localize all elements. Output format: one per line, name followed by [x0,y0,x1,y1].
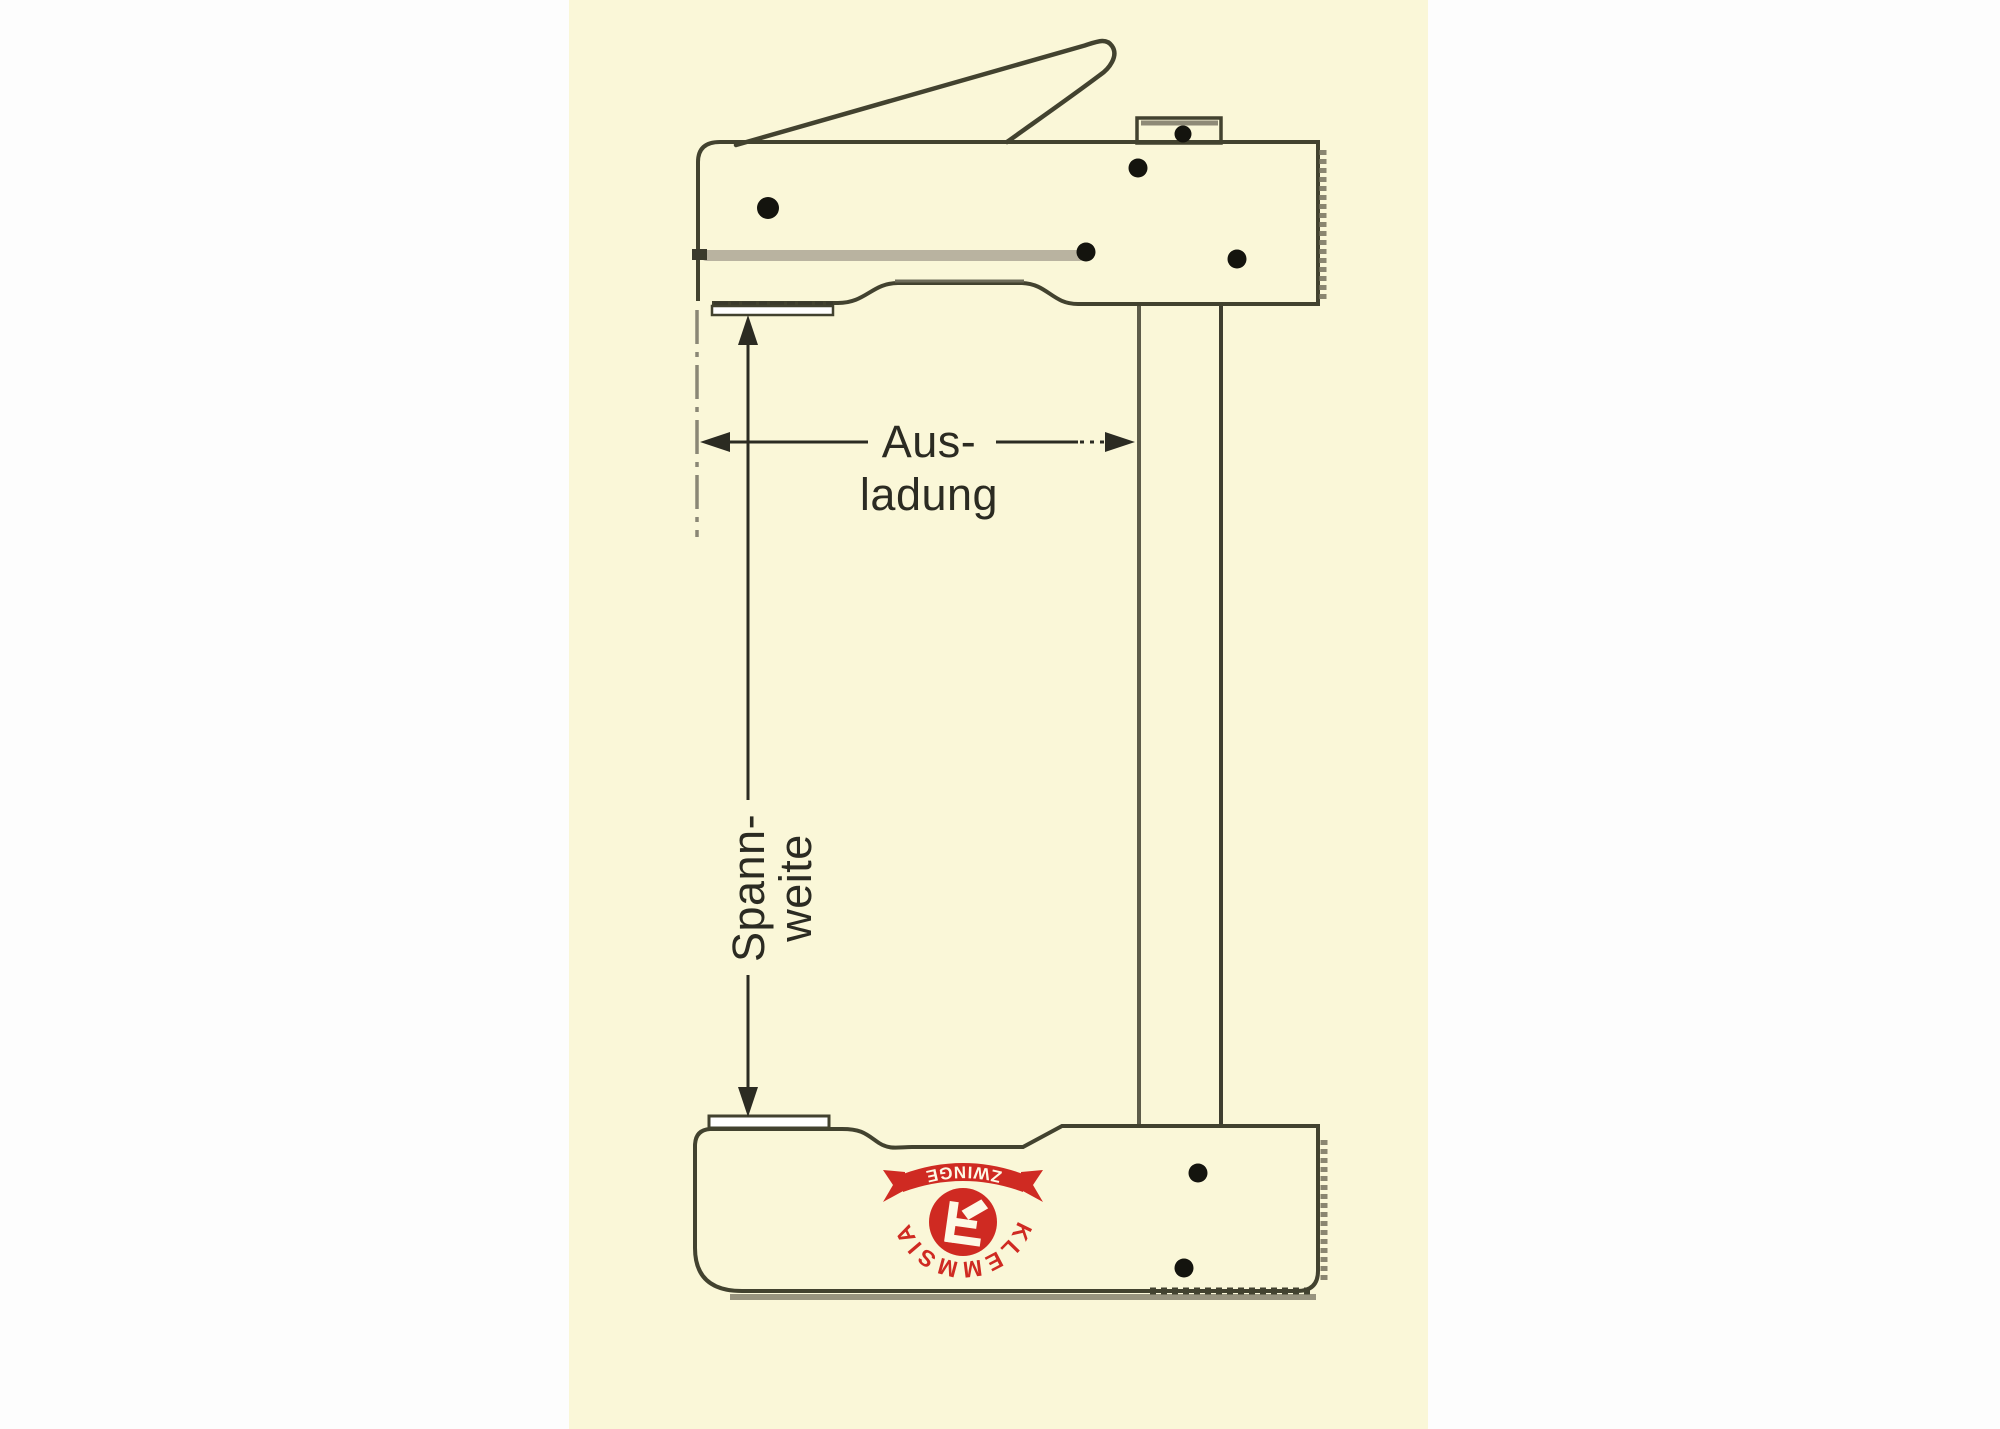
spannweite-label-line2: weite [772,814,819,962]
jaw-slot [701,250,1085,261]
spannweite-label: Spann- weite [725,814,819,962]
bar-rail [1139,306,1221,1124]
rivet [1077,243,1096,262]
rivet [757,197,779,219]
rivet [1129,159,1148,178]
clamp-drawing: KLEMMSIA ZWINGE [0,0,2000,1429]
rivet [1189,1164,1208,1183]
cam-lever [736,41,1114,145]
bottom-jaw-outline [695,1126,1318,1291]
top-pad [712,306,833,315]
arrow-left-icon [700,432,730,452]
spannweite-dimension [738,315,758,1117]
arrow-down-icon [738,1087,758,1117]
ausladung-label: Aus- ladung [860,415,998,521]
slot-notch [692,249,707,260]
spannweite-label-line1: Spann- [725,814,772,962]
logo-product-textpath: ZWINGE [923,1162,1004,1186]
bottom-jaw: KLEMMSIA ZWINGE [695,1116,1324,1297]
ausladung-label-line1: Aus- [860,415,998,468]
arrow-up-icon [738,315,758,345]
top-jaw [692,41,1323,315]
rivet [1228,250,1247,269]
bottom-pad [709,1116,829,1128]
clamp-technical-illustration: KLEMMSIA ZWINGE [0,0,2000,1429]
arrow-right-icon [1105,432,1135,452]
klemmsia-logo: KLEMMSIA ZWINGE [883,1162,1043,1283]
rivet [1175,126,1192,143]
logo-product-text: ZWINGE [923,1162,1004,1186]
rivet [1175,1259,1194,1278]
ausladung-label-line2: ladung [860,468,998,521]
